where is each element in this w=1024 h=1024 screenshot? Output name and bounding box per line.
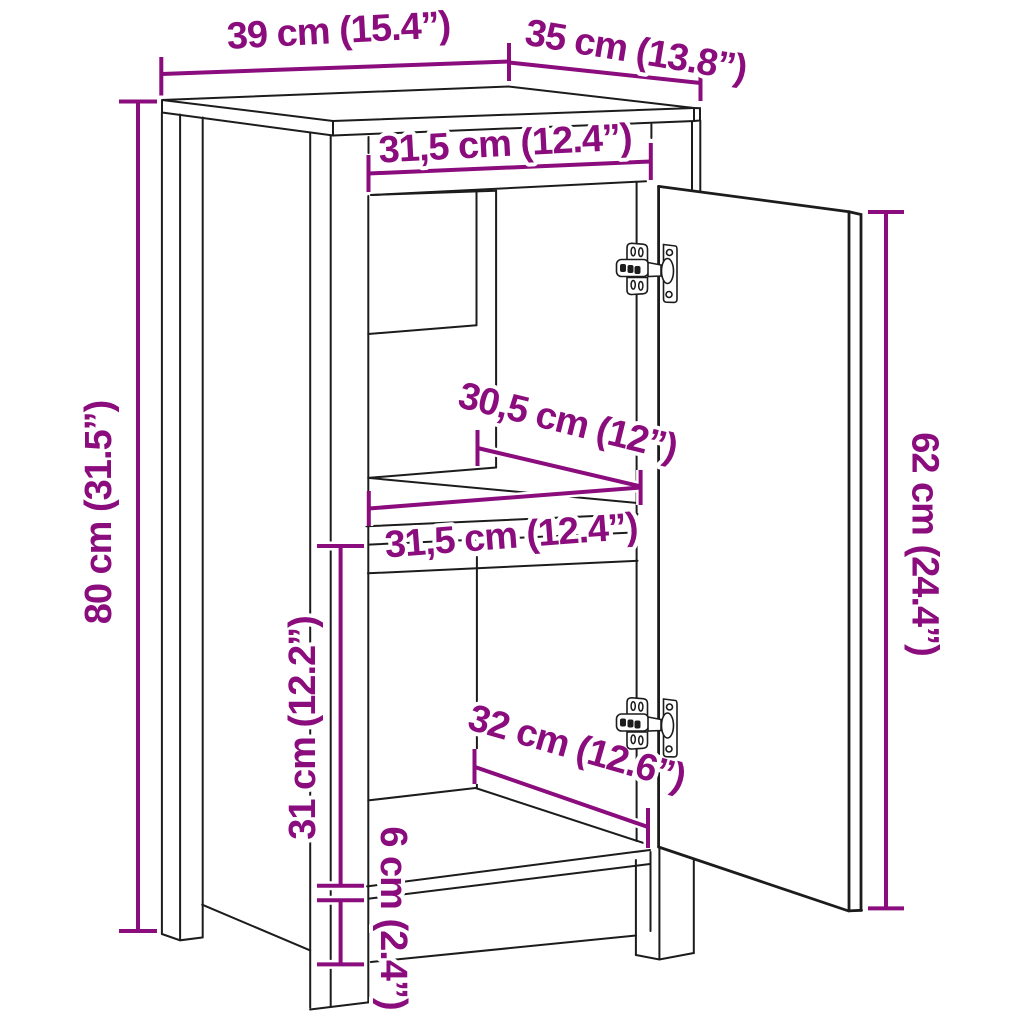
svg-text:62 cm (24.4”): 62 cm (24.4”) bbox=[904, 432, 946, 656]
svg-text:6 cm (2.4”): 6 cm (2.4”) bbox=[372, 826, 414, 1009]
svg-text:80 cm (31.5”): 80 cm (31.5”) bbox=[78, 401, 120, 625]
svg-text:31 cm (12.2”): 31 cm (12.2”) bbox=[282, 616, 324, 840]
